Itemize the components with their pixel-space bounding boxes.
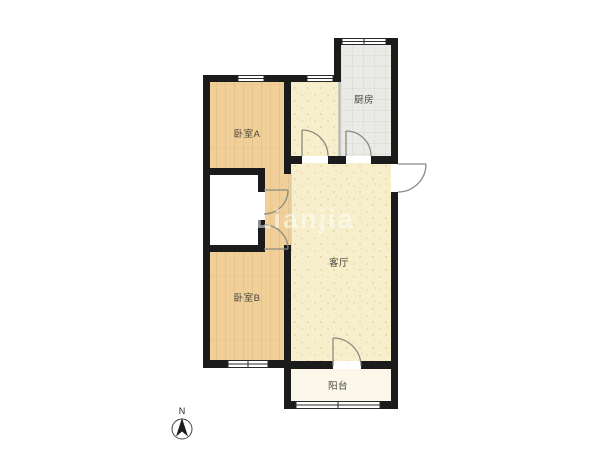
wall-bathroom-top	[203, 168, 265, 175]
north-compass: N	[172, 406, 192, 439]
wall-living-right	[391, 192, 398, 368]
label-balcony: 阳台	[328, 380, 348, 392]
wall-bathroom-right-upper	[258, 175, 265, 192]
wall-balcony-seg2	[361, 361, 398, 369]
room-bathroom-floor	[210, 175, 258, 245]
watermark: Lianjia	[255, 204, 355, 234]
window-bedroom-b	[228, 361, 268, 368]
hallway-speckle	[291, 82, 338, 156]
label-bedroom-b: 卧室B	[234, 292, 261, 304]
wall-bedroom-b-right	[284, 245, 291, 368]
wall-bedroom-b-top	[203, 245, 265, 252]
label-living-room: 客厅	[329, 257, 349, 269]
wall-kitchen-right	[391, 38, 398, 164]
room-bedroom-b-grain	[210, 252, 284, 360]
label-kitchen: 厨房	[354, 94, 374, 106]
door-entry	[398, 164, 426, 192]
room-bedroom-a-grain	[210, 82, 284, 174]
window-balcony	[296, 402, 380, 409]
floorplan-svg: Lianjia 卧室A 厨房 客厅 卧室B 阳台 N	[0, 0, 600, 450]
wall-balcony-seg1	[284, 361, 333, 369]
window-kitchen	[342, 39, 386, 45]
wall-left	[203, 75, 210, 368]
wall-hall-seg2	[328, 156, 346, 164]
wall-hall-seg3	[371, 156, 398, 164]
window-hallway	[307, 76, 333, 82]
floorplan-canvas: Lianjia 卧室A 厨房 客厅 卧室B 阳台 N	[0, 0, 600, 450]
wall-hall-seg1	[284, 156, 302, 164]
window-bedroom-a	[238, 76, 264, 82]
label-bedroom-a: 卧室A	[234, 128, 261, 140]
compass-n-label: N	[179, 406, 186, 416]
